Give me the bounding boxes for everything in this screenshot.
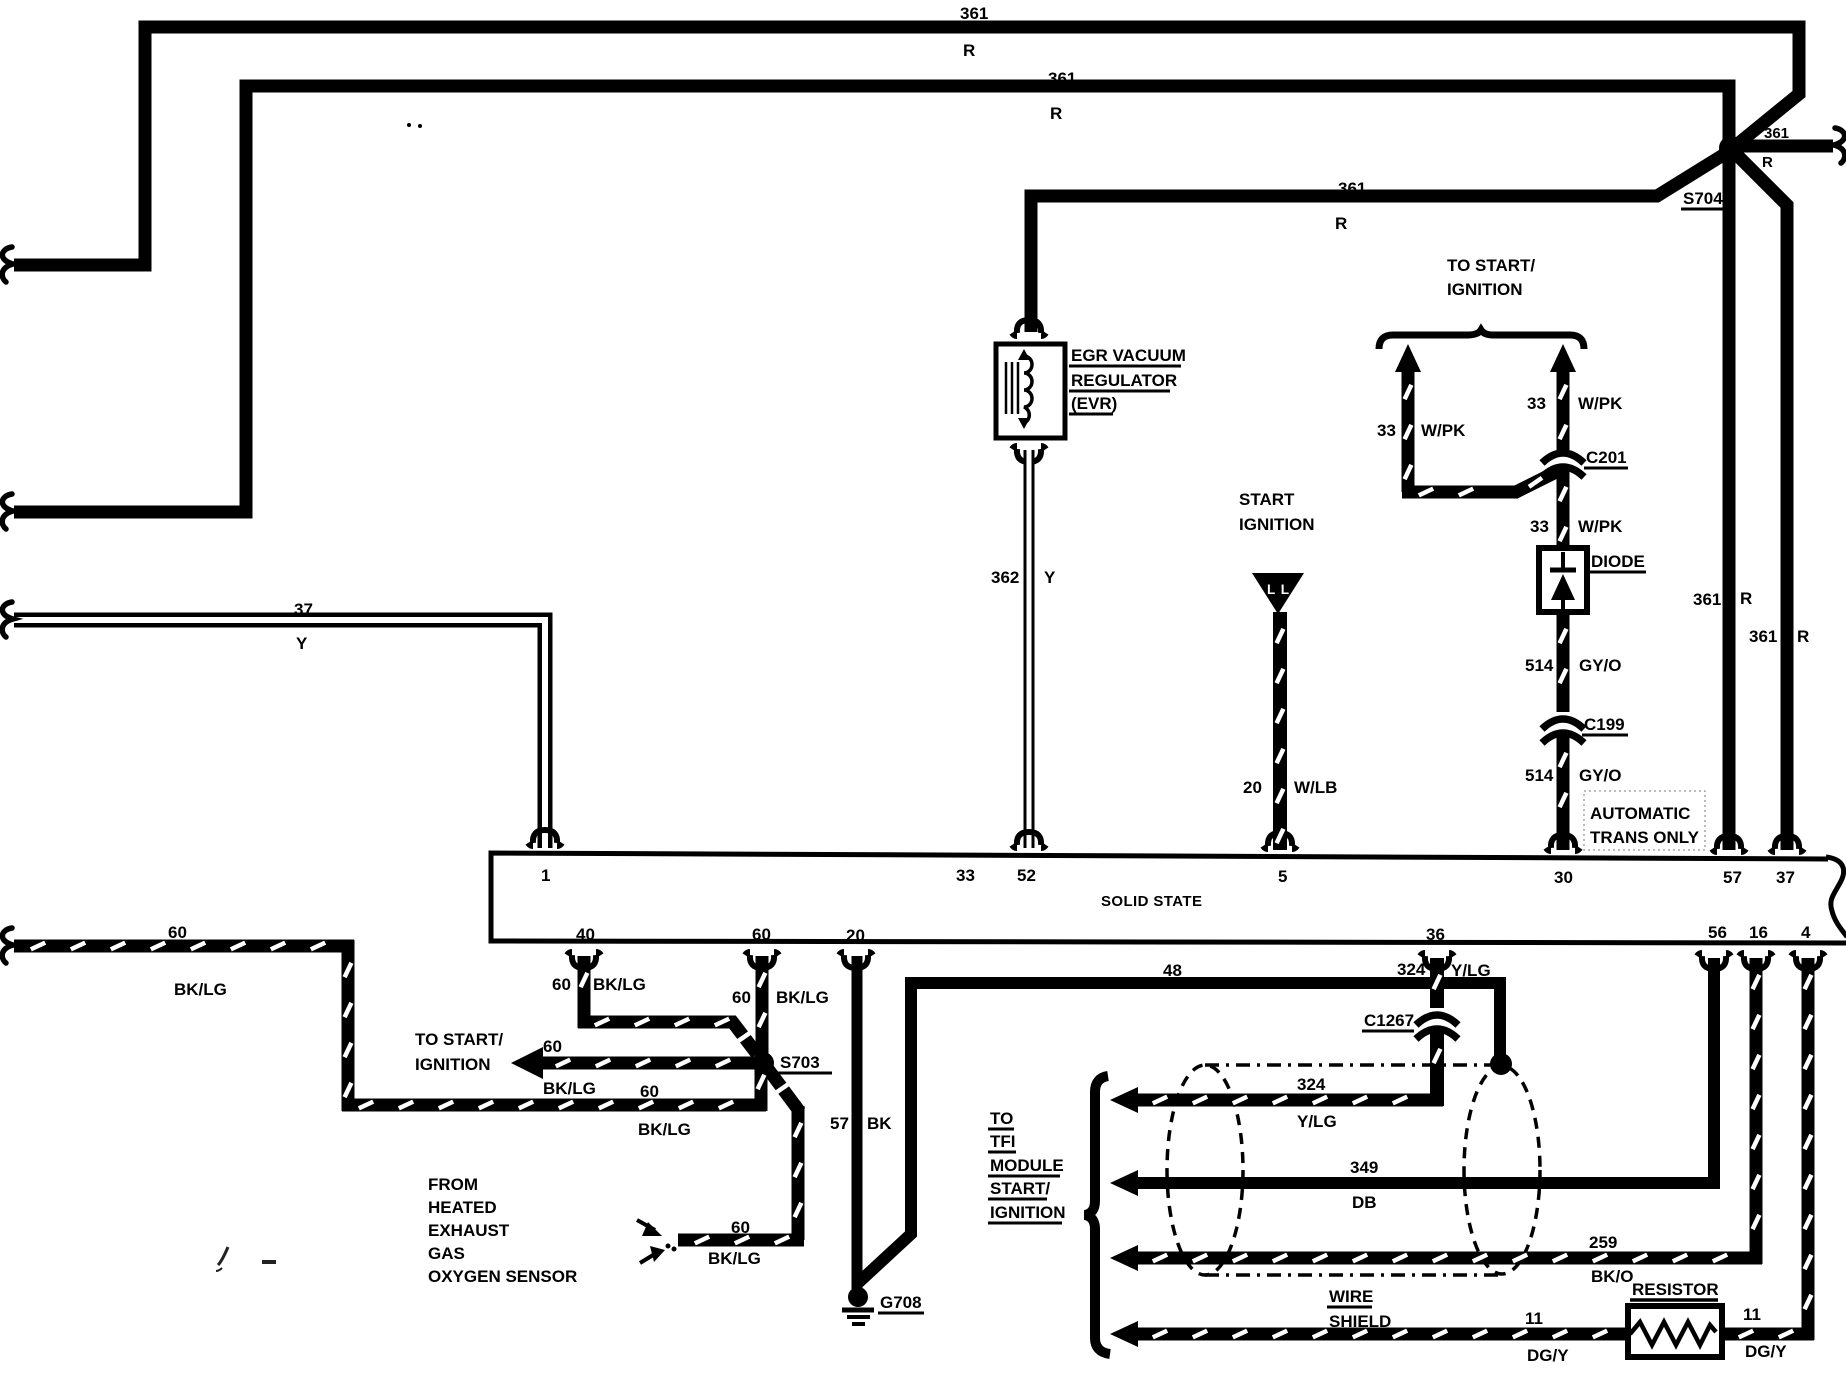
svg-text:BK/LG: BK/LG — [174, 980, 227, 999]
svg-text:DIODE: DIODE — [1591, 552, 1645, 571]
svg-text:60: 60 — [168, 923, 187, 942]
svg-text:514: 514 — [1525, 656, 1554, 675]
svg-text:33: 33 — [956, 866, 975, 885]
svg-text:W/PK: W/PK — [1421, 421, 1466, 440]
svg-text:259: 259 — [1589, 1233, 1617, 1252]
svg-text:Y/LG: Y/LG — [1451, 961, 1491, 980]
svg-text:33: 33 — [1530, 517, 1549, 536]
svg-text:IGNITION: IGNITION — [1239, 515, 1315, 534]
svg-text:324: 324 — [1297, 1075, 1326, 1094]
svg-text:60: 60 — [543, 1037, 562, 1056]
svg-text:60: 60 — [552, 975, 571, 994]
svg-text:IGNITION: IGNITION — [990, 1203, 1066, 1222]
svg-text:349: 349 — [1350, 1158, 1378, 1177]
svg-text:36: 36 — [1426, 925, 1445, 944]
svg-text:START: START — [1239, 490, 1295, 509]
svg-text:514: 514 — [1525, 766, 1554, 785]
svg-text:52: 52 — [1017, 866, 1036, 885]
svg-text:BK/LG: BK/LG — [543, 1079, 596, 1098]
svg-text:EGR VACUUM: EGR VACUUM — [1071, 346, 1186, 365]
svg-text:GY/O: GY/O — [1579, 766, 1622, 785]
svg-text:30: 30 — [1554, 868, 1573, 887]
svg-text:60: 60 — [731, 1218, 750, 1237]
svg-text:IGNITION: IGNITION — [415, 1055, 491, 1074]
svg-text:S703: S703 — [780, 1053, 820, 1072]
svg-text:16: 16 — [1749, 923, 1768, 942]
svg-text:R: R — [1797, 627, 1809, 646]
svg-text:324: 324 — [1397, 960, 1426, 979]
svg-text:Y: Y — [296, 634, 308, 653]
svg-text:5: 5 — [1278, 867, 1287, 886]
svg-text:DG/Y: DG/Y — [1745, 1342, 1787, 1361]
svg-text:TO START/: TO START/ — [1447, 256, 1535, 275]
svg-text:48: 48 — [1163, 961, 1182, 980]
svg-text:TFI: TFI — [990, 1132, 1016, 1151]
svg-text:S704: S704 — [1683, 189, 1723, 208]
svg-text:33: 33 — [1377, 421, 1396, 440]
svg-text:TO: TO — [990, 1109, 1013, 1128]
svg-text:EXHAUST: EXHAUST — [428, 1221, 510, 1240]
svg-text:G708: G708 — [880, 1293, 922, 1312]
svg-text:MODULE: MODULE — [990, 1156, 1064, 1175]
svg-text:40: 40 — [576, 925, 595, 944]
svg-text:33: 33 — [1527, 394, 1546, 413]
svg-text:4: 4 — [1801, 923, 1811, 942]
svg-text:11: 11 — [1743, 1305, 1761, 1324]
svg-text:BK/LG: BK/LG — [708, 1249, 761, 1268]
svg-text:BK/LG: BK/LG — [776, 988, 829, 1007]
svg-text:361: 361 — [1048, 69, 1076, 88]
svg-text:GY/O: GY/O — [1579, 656, 1622, 675]
svg-text:DB: DB — [1352, 1193, 1377, 1212]
svg-text:TO START/: TO START/ — [415, 1030, 503, 1049]
svg-text:SOLID STATE: SOLID STATE — [1101, 893, 1202, 910]
svg-text:361: 361 — [1693, 590, 1721, 609]
svg-text:W/LB: W/LB — [1294, 778, 1337, 797]
svg-text:361: 361 — [960, 4, 988, 23]
svg-text:60: 60 — [732, 988, 751, 1007]
svg-text:BK/O: BK/O — [1591, 1267, 1634, 1286]
svg-text:57: 57 — [1723, 868, 1742, 887]
svg-text:BK/LG: BK/LG — [638, 1120, 691, 1139]
svg-text:BK/LG: BK/LG — [593, 975, 646, 994]
svg-text:R: R — [1762, 154, 1773, 171]
svg-text:(EVR): (EVR) — [1071, 394, 1117, 413]
svg-text:R: R — [1740, 589, 1752, 608]
svg-text:C1267: C1267 — [1364, 1011, 1414, 1030]
svg-text:361: 361 — [1749, 627, 1777, 646]
svg-text:BK: BK — [867, 1114, 892, 1133]
svg-text:57: 57 — [830, 1114, 849, 1133]
svg-text:C199: C199 — [1584, 715, 1625, 734]
svg-text:Y/LG: Y/LG — [1297, 1112, 1337, 1131]
svg-text:TRANS ONLY: TRANS ONLY — [1590, 828, 1700, 847]
svg-text:REGULATOR: REGULATOR — [1071, 371, 1177, 390]
svg-text:DG/Y: DG/Y — [1527, 1346, 1569, 1365]
svg-text:20: 20 — [846, 926, 865, 945]
svg-text:37: 37 — [294, 600, 313, 619]
svg-text:FROM: FROM — [428, 1175, 478, 1194]
svg-text:37: 37 — [1776, 868, 1795, 887]
svg-text:GAS: GAS — [428, 1244, 465, 1263]
svg-text:60: 60 — [640, 1082, 659, 1101]
svg-text:L L: L L — [1267, 582, 1290, 597]
svg-text:W/PK: W/PK — [1578, 517, 1623, 536]
svg-text:56: 56 — [1708, 923, 1727, 942]
svg-text:OXYGEN SENSOR: OXYGEN SENSOR — [428, 1267, 577, 1286]
svg-text:361: 361 — [1338, 179, 1366, 198]
svg-text:WIRE: WIRE — [1329, 1287, 1373, 1306]
svg-text:R: R — [1050, 104, 1062, 123]
svg-text:R: R — [1335, 214, 1347, 233]
svg-text:IGNITION: IGNITION — [1447, 280, 1523, 299]
svg-text:11: 11 — [1525, 1309, 1543, 1328]
svg-text:START/: START/ — [990, 1179, 1050, 1198]
svg-text:60: 60 — [752, 925, 771, 944]
svg-text:RESISTOR: RESISTOR — [1632, 1280, 1719, 1299]
svg-text:W/PK: W/PK — [1578, 394, 1623, 413]
svg-text:HEATED: HEATED — [428, 1198, 497, 1217]
svg-text:C201: C201 — [1586, 448, 1627, 467]
svg-text:361: 361 — [1764, 125, 1789, 142]
svg-text:362: 362 — [991, 568, 1019, 587]
svg-text:Y: Y — [1044, 568, 1056, 587]
svg-text:1: 1 — [541, 866, 550, 885]
svg-text:R: R — [963, 41, 975, 60]
svg-text:20: 20 — [1243, 778, 1262, 797]
svg-text:AUTOMATIC: AUTOMATIC — [1590, 804, 1690, 823]
